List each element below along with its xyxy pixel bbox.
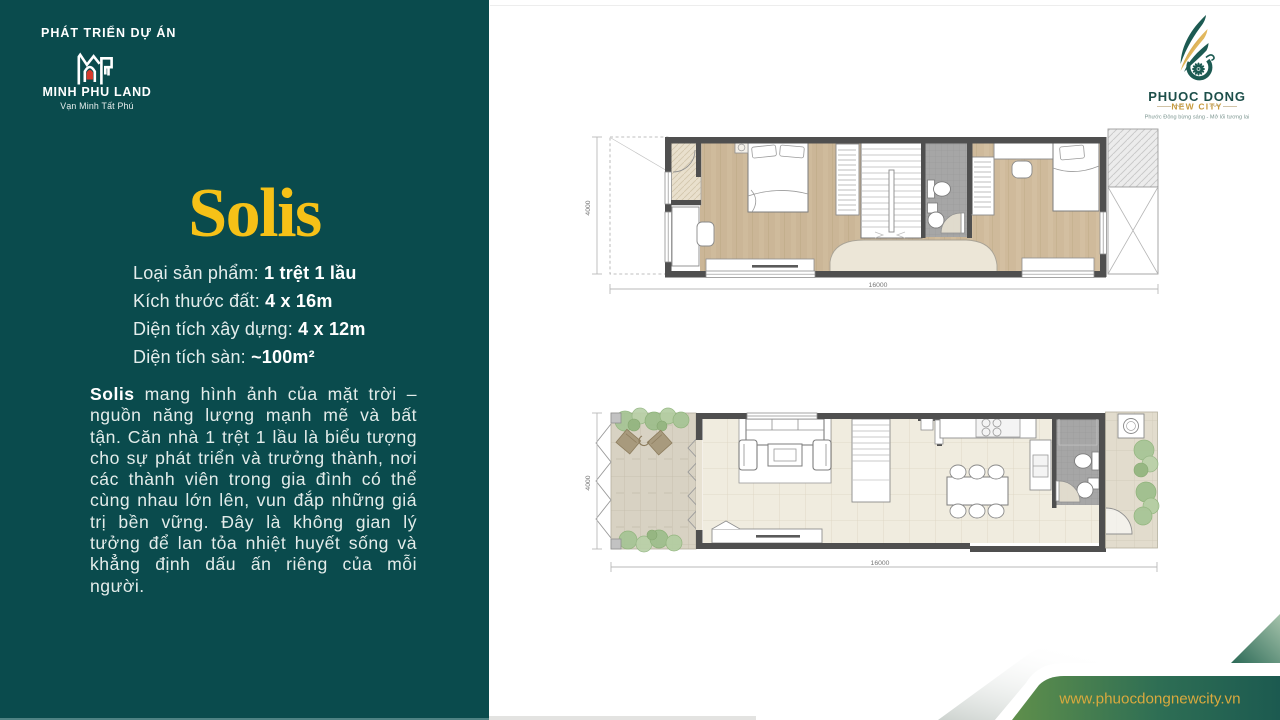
svg-text:4000: 4000 [585, 200, 592, 215]
svg-text:16000: 16000 [869, 282, 888, 289]
svg-text:www.phuocdongnewcity.vn: www.phuocdongnewcity.vn [1058, 691, 1240, 708]
svg-text:16000: 16000 [871, 560, 890, 567]
svg-text:4000: 4000 [585, 475, 592, 490]
svg-text:Phước Đông bừng sáng - Mở lối: Phước Đông bừng sáng - Mở lối tương lai [1145, 114, 1250, 121]
